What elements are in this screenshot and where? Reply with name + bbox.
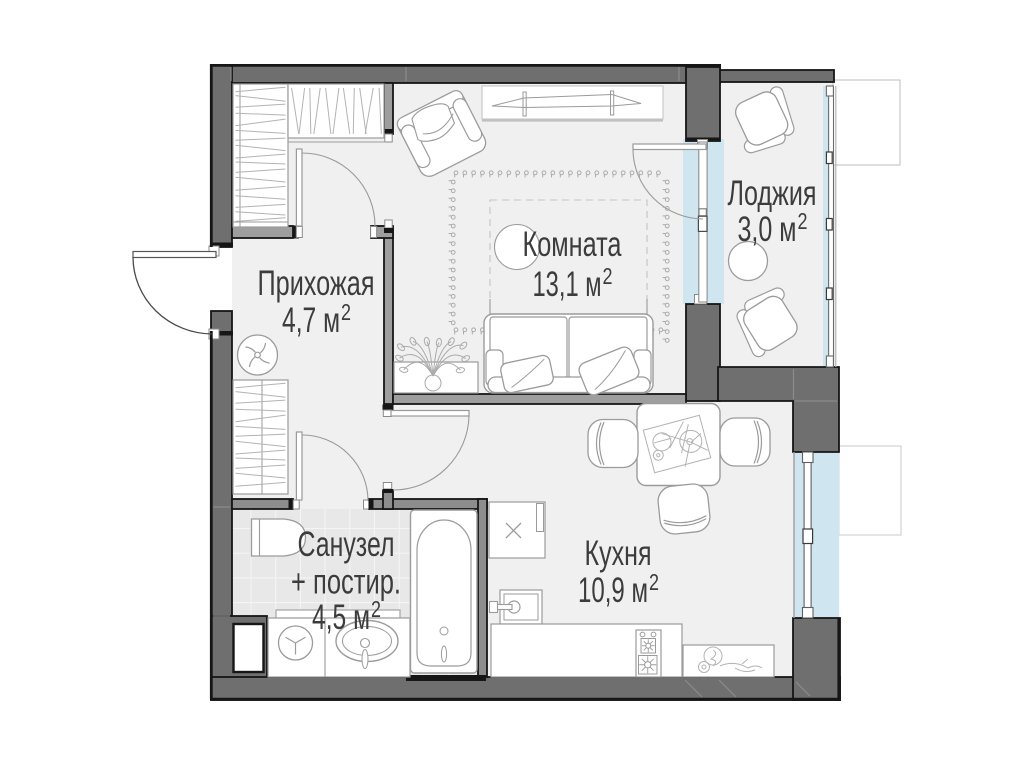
svg-text:2: 2	[798, 208, 808, 234]
svg-text:2: 2	[341, 299, 351, 325]
svg-text:2: 2	[649, 569, 659, 595]
svg-text:2: 2	[371, 596, 381, 622]
svg-text:+ постир.: + постир.	[291, 563, 401, 602]
svg-text:Комната: Комната	[523, 225, 622, 264]
svg-text:13,1 м: 13,1 м	[533, 265, 602, 304]
svg-text:Кухня: Кухня	[585, 534, 652, 573]
svg-text:4,7 м: 4,7 м	[282, 301, 340, 340]
svg-text:10,9 м: 10,9 м	[578, 571, 648, 610]
svg-text:2: 2	[603, 263, 613, 289]
svg-text:3,0 м: 3,0 м	[738, 210, 797, 249]
svg-text:4,5 м: 4,5 м	[312, 598, 370, 637]
svg-text:Санузел: Санузел	[298, 525, 395, 564]
svg-text:Прихожая: Прихожая	[258, 264, 375, 303]
